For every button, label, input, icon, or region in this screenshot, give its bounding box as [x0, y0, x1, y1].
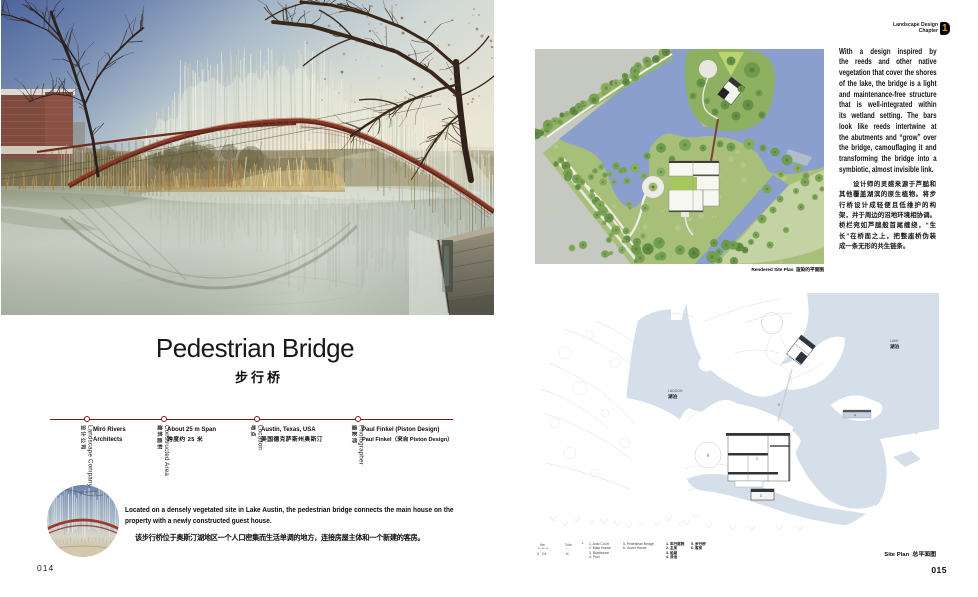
- svg-text:3: 3: [760, 494, 762, 498]
- svg-text:5: 5: [778, 403, 780, 407]
- svg-text:湖泊: 湖泊: [890, 343, 900, 350]
- svg-text:4: 4: [854, 414, 856, 418]
- svg-text:1: 1: [707, 454, 709, 458]
- svg-text:LAGOON: LAGOON: [668, 389, 683, 393]
- svg-text:2: 2: [756, 457, 758, 461]
- svg-text:6: 6: [798, 344, 800, 348]
- svg-text:湖泊: 湖泊: [668, 393, 678, 400]
- svg-text:LAKE: LAKE: [890, 339, 899, 343]
